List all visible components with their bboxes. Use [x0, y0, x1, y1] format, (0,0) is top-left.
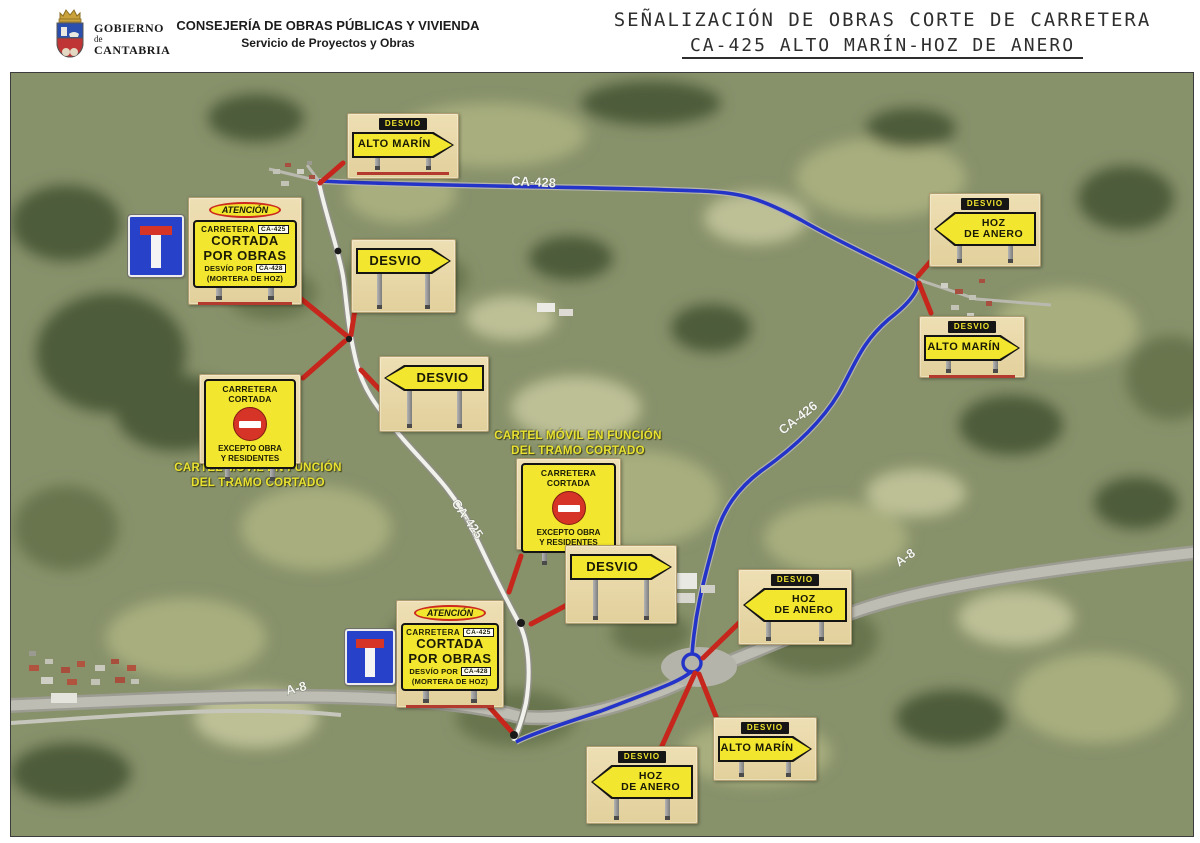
detour-sign-alto-marin-south: DESVIO ALTO MARÍN: [713, 717, 817, 781]
aerial-map: CA-428 CA-425 CA-426 A-8 A-8 CARTEL MÓVI…: [10, 72, 1194, 837]
sign-posts: [946, 361, 999, 373]
dead-end-block-bar: [356, 639, 384, 648]
sign-base: [357, 172, 449, 175]
detour-sign-desvio-3: DESVIO: [565, 545, 677, 624]
direction-arrow-right-icon: DESVIO: [570, 554, 672, 580]
direction-arrow-left-icon: DESVIO: [384, 365, 484, 391]
atencion-line5: (MORTERA DE HOZ): [196, 274, 294, 283]
road-closed-board: CARRETERA CORTADA EXCEPTO OBRA Y RESIDEN…: [521, 463, 616, 553]
detour-sign-desvio-2: DESVIO: [379, 356, 489, 432]
atencion-badge: ATENCIÓN: [209, 202, 281, 218]
detour-sign-desvio-1: DESVIO: [351, 239, 456, 313]
road-number-box: CA-428: [461, 667, 491, 676]
arrow-label: DESVIO: [570, 554, 672, 580]
sign-posts: [216, 288, 273, 300]
atencion-line3: POR OBRAS: [404, 652, 496, 667]
atencion-line3: POR OBRAS: [196, 249, 294, 264]
atencion-text-board: CARRETERACA-425 CORTADA POR OBRAS DESVÍO…: [193, 220, 297, 288]
no-through-road-sign-south: [345, 629, 395, 685]
direction-arrow-left-icon: HOZ DE ANERO: [591, 765, 693, 799]
direction-arrow-left-icon: HOZ DE ANERO: [743, 588, 847, 622]
sign-base: [198, 302, 292, 305]
arrow-label: ALTO MARÍN: [924, 335, 1020, 361]
sign-posts: [593, 580, 649, 620]
arrow-label: ALTO MARÍN: [352, 132, 454, 158]
atencion-sign-west: ATENCIÓN CARRETERACA-425 CORTADA POR OBR…: [188, 197, 302, 305]
service-name: Servicio de Proyectos y Obras: [168, 36, 488, 50]
no-through-road-sign-west: [128, 215, 184, 277]
detour-sign-hoz-de-anero-ne: DESVIO HOZ DE ANERO: [929, 193, 1041, 267]
direction-arrow-left-icon: HOZ DE ANERO: [934, 212, 1036, 246]
no-entry-icon: [552, 491, 586, 525]
atencion-line4: DESVÍO POR: [204, 264, 253, 273]
road-number-box: CA-428: [256, 264, 286, 273]
title-block: GOBIERNO de CANTABRIA CONSEJERÍA DE OBRA…: [0, 0, 1200, 72]
detour-sign-hoz-de-anero-mid: DESVIO HOZ DE ANERO: [738, 569, 852, 645]
sign-posts: [957, 246, 1013, 263]
sign-posts: [407, 391, 462, 428]
atencion-line2: CORTADA: [196, 234, 294, 249]
no-entry-icon: [233, 407, 267, 441]
sign-posts: [423, 691, 477, 703]
title-line1: SEÑALIZACIÓN DE OBRAS CORTE DE CARRETERA: [575, 9, 1190, 31]
desvio-tag: DESVIO: [741, 722, 789, 734]
atencion-line4: DESVÍO POR: [409, 667, 458, 676]
sign-posts: [377, 274, 429, 309]
org-line1: GOBIERNO: [94, 22, 170, 35]
sign-base: [929, 375, 1015, 378]
arrow-label: HOZ DE ANERO: [591, 765, 693, 799]
cantabria-coat-of-arms: [52, 6, 88, 66]
sign-posts: [614, 799, 670, 820]
road-closed-top-text: CARRETERA CORTADA: [524, 468, 613, 488]
road-closed-board: CARRETERA CORTADA EXCEPTO OBRA Y RESIDEN…: [204, 379, 296, 469]
arrow-label: DESVIO: [356, 248, 451, 274]
org-line3: CANTABRIA: [94, 44, 170, 57]
atencion-line5: (MORTERA DE HOZ): [404, 677, 496, 686]
sign-posts: [739, 762, 791, 777]
department-block: CONSEJERÍA DE OBRAS PÚBLICAS Y VIVIENDA …: [168, 18, 488, 50]
mobile-sign-caption-center: CARTEL MÓVIL EN FUNCIÓN DEL TRAMO CORTAD…: [489, 429, 667, 459]
arrow-label: DESVIO: [384, 365, 484, 391]
sign-base: [406, 705, 494, 708]
detour-sign-alto-marin-north: DESVIO ALTO MARÍN: [347, 113, 459, 179]
direction-arrow-right-icon: DESVIO: [356, 248, 451, 274]
atencion-text-board: CARRETERACA-425 CORTADA POR OBRAS DESVÍO…: [401, 623, 499, 691]
road-label-ca425: CA-425: [449, 496, 487, 541]
road-label-ca426: CA-426: [776, 398, 821, 437]
dead-end-road-bar: [151, 234, 161, 268]
sign-posts: [225, 469, 276, 481]
arrow-label: HOZ DE ANERO: [743, 588, 847, 622]
desvio-tag: DESVIO: [379, 118, 427, 130]
department-name: CONSEJERÍA DE OBRAS PÚBLICAS Y VIVIENDA: [168, 18, 488, 33]
atencion-badge: ATENCIÓN: [414, 605, 486, 621]
road-closed-top-text: CARRETERA CORTADA: [207, 384, 293, 404]
arrow-label: ALTO MARÍN: [718, 736, 812, 762]
road-closed-sign-west: CARRETERA CORTADA EXCEPTO OBRA Y RESIDEN…: [199, 374, 301, 464]
atencion-sign-south: ATENCIÓN CARRETERACA-425 CORTADA POR OBR…: [396, 600, 504, 708]
direction-arrow-right-icon: ALTO MARÍN: [352, 132, 454, 158]
desvio-tag: DESVIO: [771, 574, 819, 586]
desvio-tag: DESVIO: [961, 198, 1009, 210]
sign-posts: [766, 622, 823, 641]
drawing-title: SEÑALIZACIÓN DE OBRAS CORTE DE CARRETERA…: [575, 9, 1190, 59]
sign-posts: [375, 158, 431, 170]
direction-arrow-right-icon: ALTO MARÍN: [924, 335, 1020, 361]
detour-sign-alto-marin-east: DESVIO ALTO MARÍN: [919, 316, 1025, 378]
dead-end-block-bar: [140, 226, 171, 235]
government-name: GOBIERNO de CANTABRIA: [94, 22, 170, 57]
arrow-label: HOZ DE ANERO: [934, 212, 1036, 246]
road-closed-sign-center: CARRETERA CORTADA EXCEPTO OBRA Y RESIDEN…: [516, 458, 621, 550]
direction-arrow-right-icon: ALTO MARÍN: [718, 736, 812, 762]
road-label-ca428: CA-428: [511, 173, 557, 190]
title-line2: CA-425 ALTO MARÍN-HOZ DE ANERO: [682, 35, 1083, 59]
drawing-page: GOBIERNO de CANTABRIA CONSEJERÍA DE OBRA…: [0, 0, 1200, 843]
detour-sign-hoz-de-anero-south: DESVIO HOZ DE ANERO: [586, 746, 698, 824]
desvio-tag: DESVIO: [618, 751, 666, 763]
atencion-line2: CORTADA: [404, 637, 496, 652]
road-closed-bottom-text: EXCEPTO OBRA Y RESIDENTES: [207, 444, 293, 463]
desvio-tag: DESVIO: [948, 321, 996, 333]
dead-end-road-bar: [365, 647, 375, 677]
